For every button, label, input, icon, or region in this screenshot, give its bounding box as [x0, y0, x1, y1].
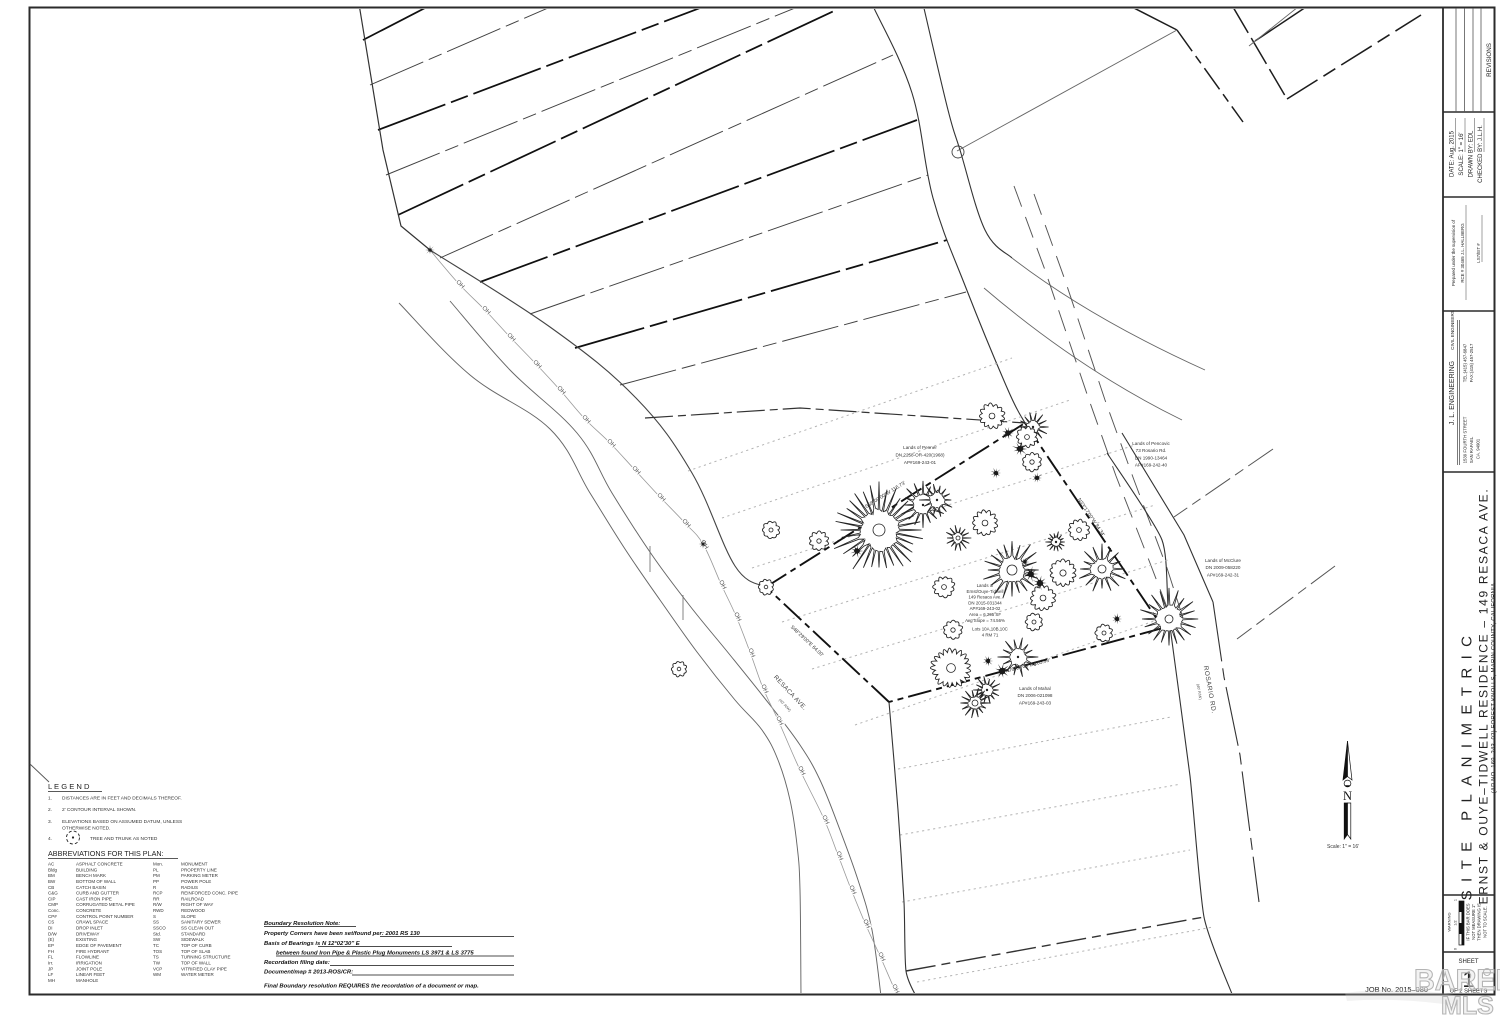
svg-text:OH: OH [746, 647, 756, 658]
svg-text:RAILROAD: RAILROAD [181, 896, 205, 901]
svg-text:REVISIONS: REVISIONS [1486, 43, 1493, 77]
svg-text:J. L. ENGINEERING: J. L. ENGINEERING [1449, 361, 1456, 425]
svg-text:WARNING: WARNING [1447, 912, 1452, 931]
svg-text:AP#169-242-40: AP#169-242-40 [1135, 463, 1168, 468]
svg-text:1539 FOURTH STREET: 1539 FOURTH STREET [1463, 416, 1468, 463]
svg-text:ASPHALT CONCRETE: ASPHALT CONCRETE [76, 862, 123, 867]
svg-text:EXISTING: EXISTING [76, 937, 98, 942]
svg-text:WATER METER: WATER METER [181, 972, 214, 977]
svg-text:Lands of Penner: Lands of Penner [903, 445, 937, 450]
svg-text:RCE # 30465 J.L. HALLBERG: RCE # 30465 J.L. HALLBERG [1460, 223, 1465, 283]
svg-text:S56°00′00″W 116.73′: S56°00′00″W 116.73′ [864, 480, 907, 510]
svg-text:VCP: VCP [153, 966, 162, 971]
svg-text:SANITARY SEWER: SANITARY SEWER [181, 920, 222, 925]
svg-text:IRRIGATION: IRRIGATION [76, 960, 102, 965]
svg-text:CP#: CP# [48, 914, 57, 919]
svg-text:OH: OH [480, 305, 491, 317]
svg-text:CONTROL POINT NUMBER: CONTROL POINT NUMBER [76, 914, 134, 919]
svg-text:PARKING METER: PARKING METER [181, 873, 219, 878]
svg-text:BOTTOM OF WALL: BOTTOM OF WALL [76, 879, 117, 884]
svg-text:RADIUS: RADIUS [181, 885, 198, 890]
svg-text:PM: PM [153, 873, 160, 878]
svg-text:S: S [153, 914, 156, 919]
svg-text:CONCRETE: CONCRETE [76, 908, 101, 913]
svg-text:JP: JP [48, 966, 53, 971]
svg-text:SITE PLANIMETRIC: SITE PLANIMETRIC [1459, 628, 1476, 901]
svg-text:OTHERWISE NOTED.: OTHERWISE NOTED. [62, 826, 110, 832]
svg-text:Std.: Std. [153, 931, 161, 936]
svg-text:Lands of: Lands of [977, 583, 995, 588]
svg-text:DN 2015-031344: DN 2015-031344 [968, 600, 1002, 605]
svg-text:1/2: 1/2 [1454, 920, 1458, 925]
svg-text:AC: AC [48, 862, 55, 867]
svg-text:CATCH BASIN: CATCH BASIN [76, 885, 106, 890]
svg-text:SAN RAFAEL: SAN RAFAEL [1469, 436, 1474, 463]
svg-text:SLOPE: SLOPE [181, 914, 196, 919]
svg-text:CORRUGATED METAL PIPE: CORRUGATED METAL PIPE [76, 902, 135, 907]
svg-text:0: 0 [1454, 948, 1458, 950]
svg-text:PP: PP [153, 879, 159, 884]
svg-text:CIP: CIP [48, 896, 56, 901]
svg-text:AP#169-243-02: AP#169-243-02 [970, 606, 1001, 611]
svg-text:SS: SS [153, 920, 159, 925]
svg-text:Lands of Pencovic: Lands of Pencovic [1132, 441, 1170, 446]
svg-text:Conc.: Conc. [48, 908, 60, 913]
svg-text:DISTANCES ARE IN FEET AND: DISTANCES ARE IN FEET AND DECIMALS THERE… [62, 796, 182, 802]
svg-text:TEL:(415) 457-6847: TEL:(415) 457-6847 [1463, 343, 1468, 382]
svg-text:D/W: D/W [48, 931, 58, 936]
svg-text:Avg Slope = 74.56%: Avg Slope = 74.56% [965, 618, 1005, 623]
svg-text:SW: SW [153, 937, 161, 942]
svg-text:DI: DI [48, 926, 53, 931]
svg-text:NOT MEASURE 1″: NOT MEASURE 1″ [1471, 904, 1476, 940]
svg-text:DROP INLET: DROP INLET [76, 926, 103, 931]
svg-text:DN 2006-021098: DN 2006-021098 [1018, 693, 1053, 698]
svg-text:TOP OF CURB: TOP OF CURB [181, 943, 212, 948]
svg-text:PL: PL [153, 867, 159, 872]
svg-text:CS: CS [48, 920, 54, 925]
svg-text:THEN DRAWING IS: THEN DRAWING IS [1477, 903, 1482, 941]
svg-text:OH: OH [732, 611, 742, 622]
svg-text:CHECKED BY: J.L.H.: CHECKED BY: J.L.H. [1478, 125, 1484, 183]
svg-text:CIVIL ENGINEERS: CIVIL ENGINEERS [1450, 310, 1455, 350]
svg-text:FH: FH [48, 949, 54, 954]
svg-text:BM: BM [48, 873, 55, 878]
svg-text:CA. 94901: CA. 94901 [1476, 438, 1481, 459]
svg-text:VITRIFIED CLAY PIPE: VITRIFIED CLAY PIPE [181, 966, 227, 971]
svg-text:WM: WM [153, 972, 161, 977]
svg-text:DRAWN BY: EDL: DRAWN BY: EDL [1469, 130, 1475, 177]
svg-text:CMP: CMP [48, 902, 58, 907]
svg-text:C&G: C&G [48, 891, 58, 896]
svg-text:OH: OH [890, 983, 900, 994]
svg-text:RESACA AVE.: RESACA AVE. [772, 674, 808, 712]
svg-text:FAX:(415) 457-2517: FAX:(415) 457-2517 [1469, 343, 1474, 382]
svg-text:3.: 3. [48, 819, 52, 825]
svg-text:OH: OH [796, 765, 806, 776]
svg-text:Irr.: Irr. [48, 960, 53, 965]
svg-text:LS7/EIT #: LS7/EIT # [1476, 243, 1481, 263]
svg-text:FLOWLINE: FLOWLINE [76, 955, 99, 960]
svg-text:MLS: MLS [1441, 992, 1494, 1015]
svg-text:(40' R/W): (40' R/W) [1196, 684, 1203, 701]
svg-text:2.: 2. [48, 807, 52, 813]
svg-text:LINEAR FEET: LINEAR FEET [76, 972, 105, 977]
svg-text:AP#169-243-01: AP#169-243-01 [904, 460, 937, 465]
svg-text:OH: OH [834, 850, 844, 861]
svg-text:2' CONTOUR INTERVAL SHOWN.: 2' CONTOUR INTERVAL SHOWN. [62, 807, 136, 813]
svg-text:(E): (E) [48, 937, 55, 942]
svg-text:(40' R/W): (40' R/W) [778, 698, 792, 713]
svg-text:CB: CB [48, 885, 54, 890]
svg-text:OH: OH [847, 884, 857, 895]
svg-text:AP#169-243-03: AP#169-243-03 [1019, 700, 1052, 705]
svg-text:L E G E N D: L E G E N D [48, 782, 90, 791]
svg-text:R/W: R/W [153, 902, 163, 907]
svg-text:OH: OH [876, 951, 886, 962]
svg-text:MH: MH [48, 978, 55, 983]
svg-text:Recordation filing date:: Recordation filing date: [264, 960, 330, 966]
svg-text:ERNST & OUYE–TIDWELL RESIDENCE: ERNST & OUYE–TIDWELL RESIDENCE – 149 RES… [1477, 488, 1491, 905]
svg-text:N: N [1343, 789, 1352, 803]
svg-text:EDGE OF PAVEMENT: EDGE OF PAVEMENT [76, 943, 122, 948]
svg-text:EP: EP [48, 943, 54, 948]
svg-text:73 Rosario Rd.: 73 Rosario Rd. [1136, 448, 1167, 453]
svg-text:OH: OH [717, 579, 727, 590]
svg-text:NOT TO SCALE.: NOT TO SCALE. [1482, 906, 1487, 938]
svg-text:DN 2258-OR-420(1968): DN 2258-OR-420(1968) [895, 452, 944, 457]
svg-text:BUILDING: BUILDING [76, 867, 98, 872]
svg-text:DN 1990-13464: DN 1990-13464 [1135, 455, 1168, 460]
svg-text:DATE: Aug. 2015: DATE: Aug. 2015 [1450, 130, 1456, 177]
svg-text:Scale: 1″ = 16′: Scale: 1″ = 16′ [1327, 844, 1359, 850]
svg-text:SIDEWALK: SIDEWALK [181, 937, 204, 942]
svg-text:SSCO: SSCO [153, 926, 166, 931]
svg-text:(AP NO. 169–243–02) FORE: (AP NO. 169–243–02) FOREST KNOLLS, MARIN… [1492, 583, 1498, 794]
svg-text:MONUMENT: MONUMENT [181, 862, 208, 867]
svg-text:BW: BW [48, 879, 56, 884]
svg-text:SCALE: 1″ = 16′: SCALE: 1″ = 16′ [1459, 132, 1465, 176]
svg-text:DRIVEWAY: DRIVEWAY [76, 931, 100, 936]
svg-text:MANHOLE: MANHOLE [76, 978, 98, 983]
svg-text:TW: TW [153, 960, 161, 965]
svg-text:RR: RR [153, 896, 160, 901]
svg-text:TC: TC [153, 943, 160, 948]
svg-text:Ernst/Ouye-Tidwell: Ernst/Ouye-Tidwell [967, 589, 1004, 594]
svg-text:ROSARIO RD.: ROSARIO RD. [1202, 665, 1217, 714]
svg-text:Final Boundary resolution REQU: Final Boundary resolution REQUIRES the r… [264, 984, 479, 990]
svg-text:OH: OH [820, 814, 830, 825]
svg-text:OH: OH [605, 438, 616, 450]
svg-text:R: R [153, 885, 157, 890]
svg-text:ABBREVIATIONS FOR THIS PLAN: ABBREVIATIONS FOR THIS PLAN: [48, 849, 164, 858]
svg-text:TURNING STRUCTURE: TURNING STRUCTURE [181, 955, 231, 960]
svg-text:Lands of McClure: Lands of McClure [1205, 558, 1241, 563]
svg-text:BENCH MARK: BENCH MARK [76, 873, 106, 878]
svg-text:CRAWL SPACE: CRAWL SPACE [76, 920, 108, 925]
svg-text:RIGHT OF WAY: RIGHT OF WAY [181, 902, 213, 907]
svg-text:SS CLEAN OUT: SS CLEAN OUT [181, 926, 214, 931]
svg-text:TOP OF SLAB: TOP OF SLAB [181, 949, 210, 954]
svg-text:CURB AND GUTTER: CURB AND GUTTER [76, 891, 120, 896]
svg-text:Document/map # 2013-ROS/CR:: Document/map # 2013-ROS/CR: [264, 970, 353, 976]
svg-text:ELEVATIONS BASED ON ASSUMED: ELEVATIONS BASED ON ASSUMED DATUM, UNLES… [62, 819, 182, 825]
svg-text:Lots 10A,10B,10C: Lots 10A,10B,10C [972, 627, 1008, 632]
svg-text:TS: TS [153, 955, 159, 960]
svg-text:4.: 4. [48, 836, 52, 842]
svg-text:AP#169-242-31: AP#169-242-31 [1207, 572, 1240, 577]
svg-text:1.: 1. [48, 796, 52, 802]
svg-text:S48°29′00″E 64.00′: S48°29′00″E 64.00′ [789, 624, 825, 658]
svg-text:IF THIS BAR DOES: IF THIS BAR DOES [1466, 903, 1471, 940]
svg-text:Bldg: Bldg [48, 867, 58, 872]
svg-text:DN 2009-058220: DN 2009-058220 [1206, 565, 1241, 570]
svg-text:CAST IRON PIPE: CAST IRON PIPE [76, 896, 112, 901]
svg-text:STANDARD: STANDARD [181, 931, 206, 936]
svg-text:Prepared under the supervis: Prepared under the supervision of [1451, 219, 1456, 286]
svg-text:REDWOOD: REDWOOD [181, 908, 206, 913]
svg-text:149 Resaca Ave.: 149 Resaca Ave. [968, 595, 1001, 600]
svg-text:PROPERTY LINE: PROPERTY LINE [181, 867, 217, 872]
svg-text:Area = 6,295 SF: Area = 6,295 SF [969, 612, 1001, 617]
svg-text:FL: FL [48, 955, 54, 960]
svg-text:FIRE HYDRANT: FIRE HYDRANT [76, 949, 110, 954]
svg-text:LF: LF [48, 972, 54, 977]
svg-text:Mon.: Mon. [153, 862, 163, 867]
svg-text:RWD: RWD [153, 908, 164, 913]
svg-text:1: 1 [1454, 899, 1458, 901]
svg-text:4 RM 71: 4 RM 71 [982, 633, 999, 638]
svg-text:Lands of Mahal: Lands of Mahal [1019, 686, 1050, 691]
svg-text:POWER POLE: POWER POLE [181, 879, 211, 884]
svg-text:JOINT POLE: JOINT POLE [76, 966, 102, 971]
svg-text:TREE AND TRUNK AS NOTED: TREE AND TRUNK AS NOTED [90, 836, 158, 842]
svg-text:TOP OF WALL: TOP OF WALL [181, 960, 211, 965]
svg-text:TOS: TOS [153, 949, 162, 954]
svg-text:RCP: RCP [153, 891, 163, 896]
svg-text:REINFORCED CONC. PIPE: REINFORCED CONC. PIPE [181, 891, 238, 896]
svg-text:OH: OH [774, 715, 784, 726]
